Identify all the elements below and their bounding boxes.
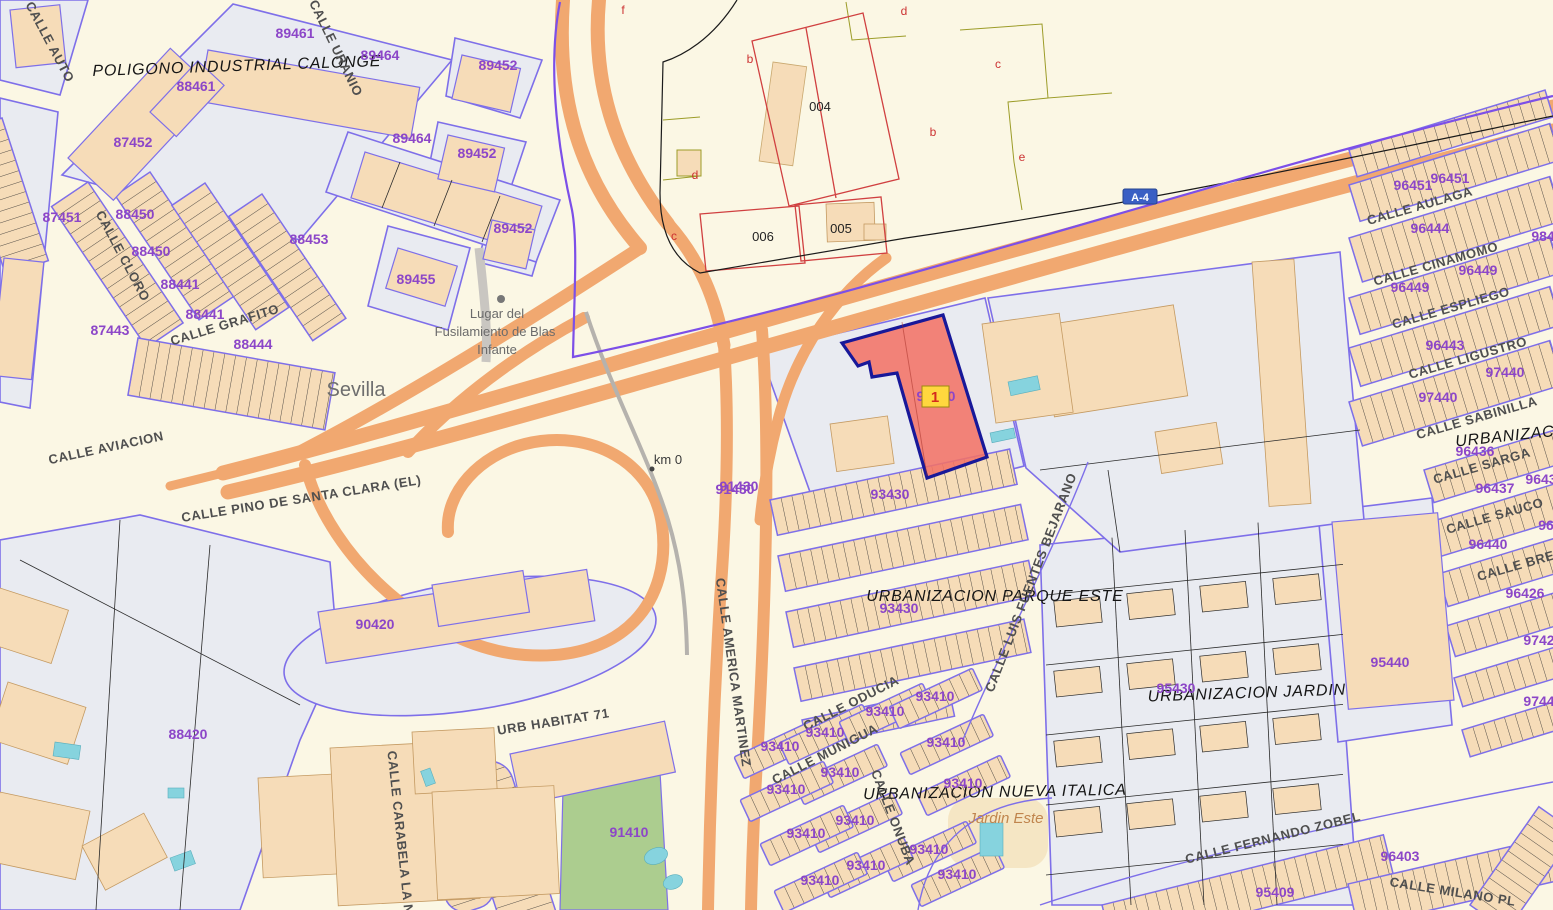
annex-parcel-label: d: [692, 168, 699, 182]
duplex-house: [1200, 721, 1248, 752]
parcel-number-label: 93410: [767, 781, 806, 797]
parcel-number-label: 93410: [944, 775, 983, 791]
parcel-number-label: 89452: [479, 57, 518, 73]
parcel-number-label: 88420: [169, 726, 208, 742]
parcel-number-label: 9742: [1523, 632, 1553, 648]
parcel-number-label: 97440: [1486, 364, 1525, 380]
parcel-number-label: 95440: [1371, 654, 1410, 670]
parcel-number-label: 9744: [1523, 693, 1553, 709]
annex-parcel-label: 005: [830, 221, 852, 236]
poi-dot: [497, 295, 505, 303]
parcel-number-label: 89464: [393, 130, 432, 146]
annex-parcel-label: b: [930, 125, 937, 139]
parcel-number-label: 93410: [927, 734, 966, 750]
cadastral-map[interactable]: POLIGONO INDUSTRIAL CALONGEURBANIZACION …: [0, 0, 1553, 910]
annex-parcel-label: b: [747, 52, 754, 66]
duplex-house: [1273, 644, 1321, 675]
duplex-house: [1200, 791, 1248, 822]
parcel-number-label: 9643: [1525, 471, 1553, 487]
parcel-number-label: 93410: [836, 812, 875, 828]
place-label: Fusilamiento de Blas: [435, 324, 556, 339]
parcel-number-label: 96451: [1394, 177, 1433, 193]
parcel-number-label: 89464: [361, 47, 400, 63]
place-label: Lugar del: [470, 306, 524, 321]
parcel-number-label: 88441: [161, 276, 200, 292]
duplex-house: [1054, 736, 1102, 767]
parcel-number-label: 87443: [91, 322, 130, 338]
annex-parcel-label: e: [1019, 150, 1026, 164]
annex-parcel-label: 006: [752, 229, 774, 244]
place-label: Jardin Este: [967, 810, 1043, 827]
parcel-number-label: 93410: [847, 857, 886, 873]
parcel-number-label: 96449: [1391, 279, 1430, 295]
parcel-number-label: 88441: [186, 306, 225, 322]
parcel-marker[interactable]: 1: [922, 386, 949, 407]
parcel-number-label: 93410: [787, 825, 826, 841]
parcel-number-label: 90420: [356, 616, 395, 632]
parcel-number-label: 93410: [761, 738, 800, 754]
place-label: Sevilla: [327, 379, 387, 401]
parcel-number-label: 96437: [1476, 480, 1515, 496]
parcel-number-label: 89455: [397, 271, 436, 287]
duplex-house: [1054, 666, 1102, 697]
parcel-number-label: 88461: [177, 78, 216, 94]
parcel-number-label: 96444: [1411, 220, 1450, 236]
parcel-marker-label: 1: [931, 389, 939, 406]
parcel-number-label: 93410: [806, 724, 845, 740]
parcel-number-label: 89461: [276, 25, 315, 41]
duplex-house: [1127, 729, 1175, 760]
parcel-number-label: 88453: [290, 231, 329, 247]
duplex-house: [1273, 714, 1321, 745]
parcel-number-label: 96426: [1506, 585, 1545, 601]
parcel-number-label: 93430: [871, 486, 910, 502]
annex-parcel-label: 004: [809, 99, 831, 114]
parcel-number-label: 87452: [114, 134, 153, 150]
parcel-number-label: 87451: [43, 209, 82, 225]
parcel-number-label: 96440: [1469, 536, 1508, 552]
place-label: km 0: [654, 452, 682, 467]
highway-shield-a4: A-4: [1123, 189, 1157, 204]
annex-parcel-label: c: [995, 57, 1001, 71]
place-label: Infante: [477, 342, 517, 357]
parcel-number-label: 93410: [801, 872, 840, 888]
cadastral-map-viewport[interactable]: POLIGONO INDUSTRIAL CALONGEURBANIZACION …: [0, 0, 1553, 910]
parcel-number-label: 91430: [716, 481, 755, 497]
duplex-house: [1054, 806, 1102, 837]
parcel-number-label: 93410: [866, 703, 905, 719]
parcel-number-label: 93410: [821, 764, 860, 780]
parcel-number-label: 97440: [1419, 389, 1458, 405]
parcel-number-label: 88444: [234, 336, 273, 352]
annex-parcel-label: c: [671, 229, 677, 243]
parcel-number-label: 89452: [494, 220, 533, 236]
duplex-house: [1127, 799, 1175, 830]
parcel-number-label: 95409: [1256, 884, 1295, 900]
parcel-number-label: 93410: [938, 866, 977, 882]
duplex-house: [1200, 581, 1248, 612]
parcel-number-label: 88450: [116, 206, 155, 222]
parcel-number-label: 96: [1538, 517, 1553, 533]
parcel-number-label: 984: [1531, 228, 1553, 244]
parcel-number-label: 93430: [880, 600, 919, 616]
parcel-number-label: 96443: [1426, 337, 1465, 353]
duplex-house: [1273, 784, 1321, 815]
highway-shield-label: A-4: [1131, 192, 1150, 204]
duplex-house: [1200, 651, 1248, 682]
duplex-house: [1273, 574, 1321, 605]
parcel-number-label: 95430: [1157, 680, 1196, 696]
parcel-number-label: 89452: [458, 145, 497, 161]
parcel-number-label: 93410: [916, 688, 955, 704]
parcel-number-label: 88450: [132, 243, 171, 259]
parcel-number-label: 96451: [1431, 170, 1470, 186]
parcel-number-label: 91410: [610, 824, 649, 840]
parcel-number-label: 93410: [910, 841, 949, 857]
annex-parcel-label: d: [901, 4, 908, 18]
duplex-house: [1127, 589, 1175, 620]
parcel-number-label: 96436: [1456, 443, 1495, 459]
km0-dot: [650, 467, 655, 472]
parcel-number-label: 96403: [1381, 848, 1420, 864]
parcel-number-label: 96449: [1459, 262, 1498, 278]
